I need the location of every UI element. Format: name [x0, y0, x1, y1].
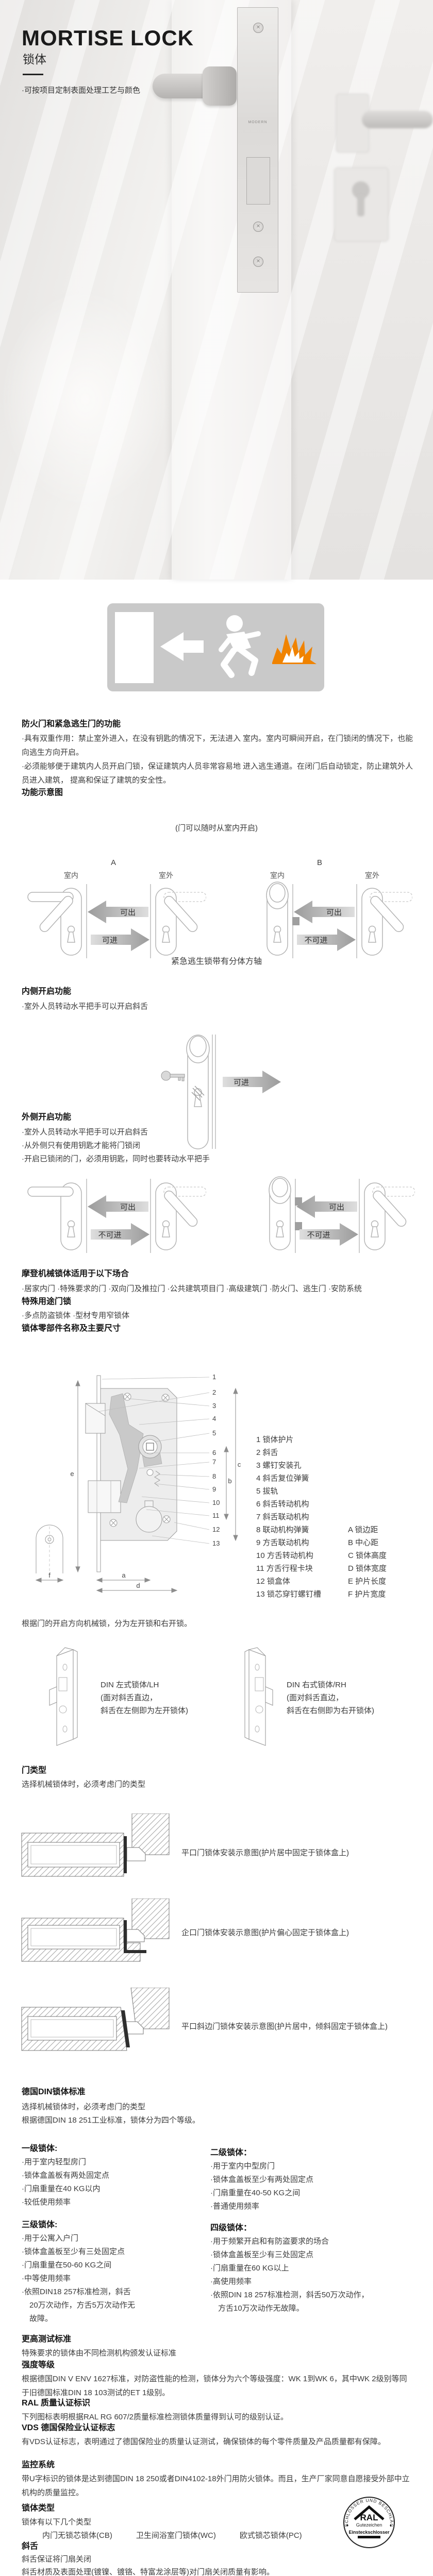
standards-heading-1: 更高测试标准	[22, 2333, 71, 2346]
inside-lever-horizontal	[28, 1187, 73, 1196]
fire-exit-sign	[107, 603, 324, 691]
section-heading-special: 特殊用途门锁	[22, 1295, 71, 1309]
install-diagram-beveled	[21, 1988, 170, 2052]
strike-plate	[124, 1836, 127, 1873]
rh-label-line1: DIN 右式锁体/RH	[287, 1679, 374, 1691]
dims-legend: A 锁边距B 中心距C 锁体高度D 锁体宽度E 护片长度F 护片宽度	[348, 1523, 425, 1601]
outer-open-bullet-1: ·室外人员转动水平把手可以开启斜舌	[22, 1125, 148, 1139]
brand-logo: MODERN	[241, 121, 274, 124]
strike-plate-horizontal	[124, 1950, 146, 1953]
svg-text:不可进: 不可进	[304, 936, 327, 945]
grade-bullet: 20万次动作，方舌5万次动作无	[22, 2299, 197, 2312]
lh-label: DIN 左式锁体/LH (面对斜舌直边， 斜舌在左侧即为左开锁体)	[101, 1679, 188, 1717]
svg-text:10: 10	[212, 1499, 220, 1506]
diagram-label-b: B	[227, 858, 412, 867]
grade-title: 一级锁体:	[22, 2142, 197, 2156]
arrow-out-icon	[88, 901, 148, 923]
dims-legend-item: A 锁边距	[348, 1523, 425, 1536]
din-line-2: 根据德国DIN 18 251工业标准，锁体分为四个等级。	[22, 2113, 200, 2127]
title-rule	[23, 74, 43, 75]
section-heading-outer-open: 外侧开启功能	[22, 1111, 71, 1124]
svg-text:1: 1	[212, 1373, 216, 1381]
svg-text:7: 7	[212, 1458, 216, 1466]
strike-plate-vertical	[124, 1920, 127, 1950]
grade-bullet: ·高使用频率	[210, 2275, 422, 2289]
section-heading-door-type: 门类型	[22, 1764, 46, 1777]
svg-text:可出: 可出	[326, 908, 342, 917]
lock-type-cb: 内门无锁芯锁体(CB)	[42, 2529, 112, 2543]
section-heading-latch: 斜舌	[22, 2540, 38, 2553]
fire-paragraph-2: ·必须能够便于建筑内人员开启门锁，保证建筑内人员非常容易地 进入逃生通道。在闭门…	[22, 759, 414, 787]
page-title: MORTISE LOCK	[22, 26, 194, 50]
svg-text:可出: 可出	[120, 908, 136, 917]
svg-text:3: 3	[212, 1402, 216, 1410]
grade-title: 三级锁体:	[22, 2218, 197, 2232]
function-diagram-b: 室内 室外 可出 不可进	[227, 870, 412, 961]
lh-label-line1: DIN 左式锁体/LH	[101, 1679, 188, 1691]
inner-open-bullet: ·室外人员转动水平把手可以开启斜舌	[22, 999, 148, 1013]
svg-text:d: d	[136, 1582, 140, 1589]
fire-paragraph-1: ·具有双重作用：禁止室外进入，在没有钥匙的情况下，无法进入 室内。室内可瞬间开启…	[22, 732, 414, 759]
grade-bullet: ·锁体盒盖板至少有三处固定点	[210, 2248, 422, 2262]
lh-label-line3: 斜舌在左侧即为左开锁体)	[101, 1704, 188, 1717]
door-type-line: 选择机械锁体时，必须考虑门的类型	[22, 1777, 145, 1791]
page-subtitle: 锁体	[23, 49, 46, 67]
grade-block-2: 二级锁体： ·用于室内中型房门·锁体盒盖板至少有两处固定点·门扇重量在40-50…	[210, 2146, 417, 2213]
grade-bullet: ·锁体盒盖板有两处固定点	[22, 2169, 197, 2182]
grade-block-1: 一级锁体: ·用于室内轻型房门·锁体盒盖板有两处固定点·门扇重量在40 KG以内…	[22, 2142, 197, 2209]
grade-bullet: 方舌10万次动作无故障。	[210, 2302, 422, 2315]
grade-bullet: ·中等使用频率	[22, 2272, 197, 2285]
lock-mechanism-diagram: 1 2 3 4 5 6 7 8 9 10 11 12 13	[21, 1347, 242, 1600]
grade-title: 二级锁体：	[210, 2146, 417, 2160]
svg-text:室外: 室外	[365, 871, 379, 879]
screw-icon: ✕	[253, 257, 263, 267]
grade-block-3: 三级锁体: ·用于公寓入户门·锁体盒盖板至少有三处固定点·门扇重量在50-60 …	[22, 2218, 197, 2326]
svg-text:可出: 可出	[120, 1203, 136, 1212]
dims-legend-item: E 护片长度	[348, 1575, 425, 1588]
parts-legend-item: 10 方舌转动机构	[256, 1549, 344, 1562]
parts-legend-item: 7 斜舌联动机构	[256, 1511, 344, 1523]
grade-bullet: ·用于室内轻型房门	[22, 2156, 197, 2169]
parts-legend-item: 13 锁芯穿钉螺钉槽	[256, 1588, 344, 1601]
standards-text-1: 特殊要求的锁体由不同检测机构颁发认证标准	[22, 2346, 414, 2360]
lock-body-lh-illustration	[47, 1647, 86, 1747]
svg-text:RAL: RAL	[360, 2513, 378, 2522]
grade-bullet: ·用于频繁开启和有防盗要求的场合	[210, 2235, 422, 2248]
function-diagram-a: 室内 室外 可出 可进	[21, 870, 206, 961]
standards-heading-3: RAL 质量认证标识	[22, 2397, 90, 2410]
callout-numbers: 1 2 3 4 5 6 7 8 9 10 11 12 13	[212, 1373, 220, 1547]
arrow-out-icon	[296, 1195, 357, 1218]
section-heading-din: 德国DIN锁体标准	[22, 2086, 86, 2099]
rh-label: DIN 右式锁体/RH (面对斜舌直边， 斜舌在右侧即为右开锁体)	[287, 1679, 374, 1717]
parts-legend-item: 8 联动机构弹簧	[256, 1523, 344, 1536]
handedness-line: 根据门的开启方向机械锁，分为左开锁和右开锁。	[22, 1617, 192, 1631]
install-caption-3: 平口斜边门锁体安装示意图(护片居中，倾斜固定于锁体盒上)	[181, 2021, 429, 2031]
svg-text:4: 4	[212, 1415, 216, 1422]
lock-type-pc: 欧式锁芯锁体(PC)	[240, 2529, 302, 2543]
install-diagram-rebated	[21, 1899, 170, 1963]
arrow-enter-icon	[91, 928, 149, 951]
latch-bolt	[86, 1403, 105, 1433]
svg-text:Einsteckschlosser: Einsteckschlosser	[348, 2530, 390, 2535]
svg-text:11: 11	[212, 1512, 220, 1519]
protection-plate	[36, 1525, 63, 1573]
handle-follower	[139, 1435, 161, 1458]
header-bullet: ·可按项目定制表面处理工艺与颜色	[22, 84, 140, 95]
key-icon	[161, 1071, 185, 1081]
parts-legend-item: 6 斜舌转动机构	[256, 1498, 344, 1511]
grade-block-4: 四级锁体： ·用于频繁开启和有防盗要求的场合·锁体盒盖板至少有三处固定点·门扇重…	[210, 2222, 422, 2315]
lock-type-wc: 卫生间浴室门锁体(WC)	[136, 2529, 216, 2543]
rh-label-line3: 斜舌在右侧即为右开锁体)	[287, 1704, 374, 1717]
svg-text:不可进: 不可进	[307, 1231, 330, 1240]
catalog-page: ✕ MODERN ✕ ✕ MORTISE LOCK 锁体 ·可按项目定制表面处理…	[0, 0, 433, 2576]
key-open-diagram: 可进	[155, 1030, 284, 1151]
dims-legend-item: B 中心距	[348, 1536, 425, 1549]
lock-body-rh-illustration	[236, 1647, 275, 1747]
grade-bullet: ·锁体盒盖板至少有两处固定点	[210, 2173, 417, 2187]
lock-types-row: 内门无锁芯锁体(CB) 卫生间浴室门锁体(WC) 欧式锁芯锁体(PC)	[42, 2529, 302, 2543]
din-line-1: 选择机械锁体时，必须考虑门的类型	[22, 2100, 145, 2114]
deadbolt-block	[295, 1222, 302, 1230]
svg-text:12: 12	[212, 1526, 220, 1533]
diagram-bottom-caption: 紧急逃生锁带有分体方轴	[0, 954, 433, 967]
standards-heading-5: 监控系统	[22, 2459, 55, 2472]
svg-text:f: f	[48, 1571, 51, 1579]
special-line: ·多点防盗锁体 ·型材专用窄锁体	[22, 1309, 129, 1323]
svg-text:b: b	[228, 1477, 231, 1485]
parts-legend-item: 11 方舌行程卡块	[256, 1562, 344, 1575]
diagram-top-caption: (门可以随时从室内开启)	[0, 822, 433, 833]
standards-heading-2: 强度等级	[22, 2359, 55, 2372]
latch-slot	[246, 157, 270, 205]
arrow-out-icon	[88, 1195, 148, 1218]
section-heading-lock-types: 锁体类型	[22, 2502, 55, 2515]
grade-bullet: 故障。	[22, 2312, 197, 2326]
standards-heading-4: VDS 德国保险业认证标志	[22, 2421, 115, 2435]
outer-open-bullet-3: ·开启已锁闭的门，必须用钥匙，同时也要转动水平把手	[22, 1152, 210, 1166]
grade-bullet: ·依照DIN 18 257标准检测，斜舌50万次动作，	[210, 2289, 422, 2302]
deadbolt-block	[292, 917, 299, 925]
grade-bullet: ·较低使用频率	[22, 2196, 197, 2209]
parts-legend: 1 锁体护片2 斜舌3 螺钉安装孔4 斜舌复位弹簧5 拔轨6 斜舌转动机构7 斜…	[256, 1433, 344, 1601]
lh-label-line2: (面对斜舌直边，	[101, 1691, 188, 1704]
parts-legend-item: 5 拔轨	[256, 1485, 344, 1498]
svg-text:室内: 室内	[64, 871, 78, 879]
svg-text:可进: 可进	[234, 1078, 249, 1087]
grade-bullet: ·用于室内中型房门	[210, 2160, 417, 2173]
svg-text:a: a	[122, 1571, 126, 1579]
latch-line-1: 斜舌保证将门扇关闭	[22, 2552, 91, 2566]
svg-text:e: e	[70, 1470, 74, 1478]
svg-text:可出: 可出	[329, 1203, 344, 1212]
diagram-label-a: A	[21, 858, 206, 867]
euro-cylinder-tail	[357, 195, 364, 216]
lock-faceplate	[237, 7, 278, 293]
deadbolt	[88, 1481, 121, 1513]
lock-types-line: 锁体有以下几个类型	[22, 2515, 91, 2529]
parts-legend-item: 2 斜舌	[256, 1446, 344, 1459]
grade-title: 四级锁体：	[210, 2222, 422, 2235]
parts-legend-item: 9 方舌联动机构	[256, 1536, 344, 1549]
screw-icon: ✕	[253, 23, 263, 33]
install-caption-1: 平口门锁体安装示意图(护片居中固定于锁体盒上)	[181, 1847, 424, 1858]
rh-label-line2: (面对斜舌直边，	[287, 1691, 374, 1704]
outer-open-bullet-2: ·从外侧只有使用钥匙才能将门锁闭	[22, 1139, 140, 1153]
screw-icon: ✕	[253, 222, 263, 232]
dims-legend-item: D 锁体宽度	[348, 1562, 425, 1575]
section-heading-parts: 锁体零部件名称及主要尺寸	[22, 1322, 121, 1335]
grade-bullet: ·门扇重量在50-60 KG之间	[22, 2259, 197, 2272]
outside-lever	[362, 111, 433, 128]
svg-text:可进: 可进	[102, 936, 118, 945]
svg-text:5: 5	[212, 1429, 216, 1437]
section-heading-usage: 摩登机械锁体适用于以下场合	[22, 1267, 129, 1281]
parts-legend-item: 1 锁体护片	[256, 1433, 344, 1446]
dims-legend-item: F 护片宽度	[348, 1588, 425, 1601]
parts-legend-item: 3 螺钉安装孔	[256, 1459, 344, 1472]
svg-text:Gutezeichen: Gutezeichen	[356, 2522, 382, 2528]
svg-text:c: c	[238, 1461, 241, 1468]
usage-line: ·居家内门 ·特殊要求的门 ·双向门及推拉门 ·公共建筑项目门 ·高级建筑门 ·…	[22, 1282, 419, 1296]
svg-text:8: 8	[212, 1472, 216, 1480]
grade-bullet: ·门扇重量在40 KG以内	[22, 2182, 197, 2196]
section-heading-fire: 防火门和紧急逃生门的功能	[22, 718, 121, 731]
svg-text:室外: 室外	[159, 871, 173, 879]
parts-legend-item: 12 锁盒体	[256, 1575, 344, 1588]
svg-text:室内: 室内	[270, 871, 285, 879]
section-heading-function-diagram: 功能示意图	[22, 786, 63, 800]
svg-text:6: 6	[212, 1449, 216, 1456]
install-diagram-flush	[21, 1814, 170, 1878]
svg-text:2: 2	[212, 1388, 216, 1396]
dims-legend-item: C 锁体高度	[348, 1549, 425, 1562]
ral-badge-icon: SCHLOSSER UND BESCHLÄGE RAL Gutezeichen …	[342, 2496, 396, 2549]
grade-bullet: ·门扇重量在40-50 KG之间	[210, 2187, 417, 2200]
standards-text-4: 有VDS认证标志，表明通过了德国保险业的质量认证测试，确保锁体的每个零件质量及产…	[22, 2435, 414, 2449]
arrow-enter-icon	[223, 1071, 281, 1093]
svg-text:13: 13	[212, 1539, 220, 1547]
grade-bullet: ·门扇重量在60 KG以上	[210, 2262, 422, 2275]
svg-text:不可进: 不可进	[98, 1231, 121, 1240]
standards-text-2: 根据德国DIN V ENV 1627标准，对防盗性能的检测，锁体分为六个等级强度…	[22, 2372, 414, 2400]
section-heading-inner-open: 内侧开启功能	[22, 985, 71, 998]
parts-legend-item: 4 斜舌复位弹簧	[256, 1472, 344, 1485]
grade-bullet: ·用于公寓入户门	[22, 2232, 197, 2245]
grade-bullet: ·锁体盒盖板至少有三处固定点	[22, 2245, 197, 2259]
arrow-out-icon	[294, 901, 355, 923]
latch-line-2: 斜舌材质及表面处理(镀镍、镀铬、特富龙涂层等)对门扇关闭质量有影响。	[22, 2565, 414, 2576]
function-diagram-d: 可出 不可进	[229, 1176, 415, 1256]
hero-photo: ✕ MODERN ✕ ✕ MORTISE LOCK 锁体 ·可按项目定制表面处理…	[0, 0, 433, 580]
grade-bullet: ·依照DIN18 257标准检测，斜舌	[22, 2285, 197, 2299]
door-handle-grip	[203, 66, 237, 106]
grade-bullet: ·普通使用频率	[210, 2200, 417, 2213]
function-diagram-c: 可出 不可进	[21, 1176, 206, 1256]
install-caption-2: 企口门锁体安装示意图(护片偏心固定于锁体盒上)	[181, 1927, 424, 1938]
exit-door-icon	[115, 612, 154, 683]
svg-text:9: 9	[212, 1485, 216, 1493]
latch-bolt-left	[49, 1687, 57, 1705]
